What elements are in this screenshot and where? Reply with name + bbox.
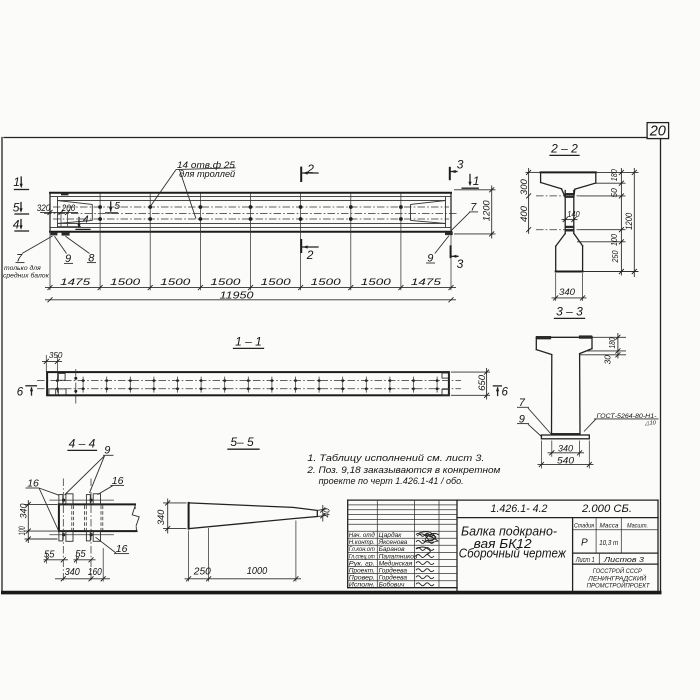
svg-text:20: 20 (649, 123, 666, 139)
svg-text:350: 350 (49, 350, 63, 360)
svg-text:Стадия: Стадия (574, 522, 594, 530)
svg-text:340: 340 (558, 444, 574, 454)
svg-text:10,3 т: 10,3 т (599, 538, 618, 547)
svg-text:Гл.спец.от: Гл.спец.от (349, 553, 375, 560)
svg-text:1000: 1000 (247, 565, 268, 577)
svg-text:Провер.: Провер. (349, 575, 375, 582)
svg-text:проекте по черт 1.426.1-41 / о: проекте по черт 1.426.1-41 / обо. (319, 476, 464, 486)
svg-text:1500: 1500 (210, 277, 241, 288)
svg-text:340: 340 (156, 509, 166, 525)
svg-text:11950: 11950 (220, 291, 255, 302)
svg-text:2 – 2: 2 – 2 (550, 142, 578, 156)
svg-text:Гордеева: Гордеева (379, 574, 408, 582)
svg-text:1: 1 (13, 175, 20, 189)
svg-text:1: 1 (473, 174, 480, 188)
svg-text:2. Поз. 9,18 заказываются в ко: 2. Поз. 9,18 заказываются в конкретном (306, 465, 500, 475)
svg-text:50: 50 (609, 188, 619, 198)
svg-text:Палатников: Палатников (379, 553, 418, 560)
svg-text:1500: 1500 (311, 277, 342, 288)
svg-text:9: 9 (104, 445, 110, 457)
svg-text:Р: Р (581, 538, 588, 549)
svg-text:5: 5 (115, 201, 121, 212)
svg-text:1 – 1: 1 – 1 (235, 334, 262, 348)
svg-text:2: 2 (306, 248, 314, 262)
svg-text:100: 100 (17, 526, 27, 536)
svg-text:250: 250 (610, 250, 620, 263)
svg-text:ГОССТРОЙ СССР: ГОССТРОЙ СССР (593, 566, 642, 575)
svg-text:Бобович: Бобович (379, 581, 405, 589)
svg-text:3: 3 (457, 158, 464, 172)
svg-text:320: 320 (37, 203, 51, 213)
svg-text:Лист 1: Лист 1 (575, 555, 595, 564)
svg-text:средних балок: средних балок (3, 271, 50, 279)
svg-text:Н.контр.: Н.контр. (349, 539, 375, 546)
svg-text:Баранов: Баранов (379, 546, 406, 553)
svg-text:6: 6 (502, 386, 509, 398)
svg-text:140: 140 (567, 209, 580, 219)
svg-text:40: 40 (322, 508, 332, 518)
svg-text:1. Таблицу исполнений см. лис: 1. Таблицу исполнений см. лист 3. (307, 453, 484, 463)
svg-text:Масшт.: Масшт. (627, 523, 648, 530)
svg-text:6: 6 (17, 387, 24, 399)
svg-text:250: 250 (193, 566, 211, 578)
svg-text:Масса: Масса (600, 523, 619, 530)
svg-text:160: 160 (88, 566, 102, 578)
svg-text:100: 100 (609, 234, 619, 246)
svg-text:1200: 1200 (481, 199, 491, 221)
svg-text:Мединская: Мединская (379, 559, 413, 567)
svg-text:55: 55 (44, 548, 55, 560)
svg-text:3 – 3: 3 – 3 (556, 304, 583, 318)
svg-text:1500: 1500 (361, 277, 392, 288)
svg-text:340: 340 (559, 287, 576, 297)
svg-text:Гордеева: Гордеева (379, 567, 408, 575)
svg-text:1500: 1500 (261, 277, 292, 288)
svg-text:400: 400 (519, 205, 529, 222)
svg-text:5: 5 (13, 201, 20, 215)
svg-text:2.000 СБ.: 2.000 СБ. (581, 503, 632, 515)
svg-text:340: 340 (19, 503, 29, 519)
svg-text:Цардак: Цардак (379, 531, 403, 539)
svg-text:300: 300 (519, 178, 529, 195)
svg-text:1.426.1- 4.2: 1.426.1- 4.2 (491, 503, 548, 515)
svg-text:340: 340 (65, 566, 80, 578)
svg-text:Рук. гр.: Рук. гр. (349, 560, 375, 567)
svg-text:30: 30 (603, 355, 613, 365)
svg-text:Сборочный чертеж: Сборочный чертеж (459, 547, 567, 561)
svg-text:для троллей: для троллей (179, 169, 235, 179)
svg-text:3: 3 (457, 257, 464, 271)
svg-text:ЛЕНИНГРАДСКИЙ: ЛЕНИНГРАДСКИЙ (587, 573, 646, 582)
svg-text:Проект.: Проект. (349, 568, 375, 575)
svg-text:Гл.кон.от: Гл.кон.от (349, 546, 375, 553)
svg-text:Нач. отд: Нач. отд (349, 531, 375, 539)
svg-text:4 – 4: 4 – 4 (69, 437, 96, 451)
svg-text:1475: 1475 (60, 277, 91, 288)
svg-text:650: 650 (477, 374, 487, 391)
svg-text:1475: 1475 (411, 277, 442, 288)
svg-text:180: 180 (609, 169, 619, 181)
svg-text:Листов 3: Листов 3 (603, 555, 644, 564)
svg-text:1200: 1200 (624, 212, 634, 230)
svg-text:4: 4 (13, 218, 20, 232)
svg-text:5– 5: 5– 5 (230, 435, 254, 449)
svg-text:1500: 1500 (160, 277, 191, 288)
svg-text:180: 180 (607, 337, 617, 348)
svg-text:1500: 1500 (110, 277, 141, 288)
svg-text:Исполн.: Исполн. (349, 582, 375, 589)
svg-text:ПРОМСТРОЙПРОЕКТ: ПРОМСТРОЙПРОЕКТ (587, 580, 651, 589)
svg-text:540: 540 (557, 455, 575, 465)
svg-text:△10: △10 (644, 421, 657, 427)
svg-text:только для: только для (4, 264, 41, 272)
svg-text:Яксенова: Яксенова (378, 539, 408, 546)
svg-text:4: 4 (83, 215, 89, 226)
